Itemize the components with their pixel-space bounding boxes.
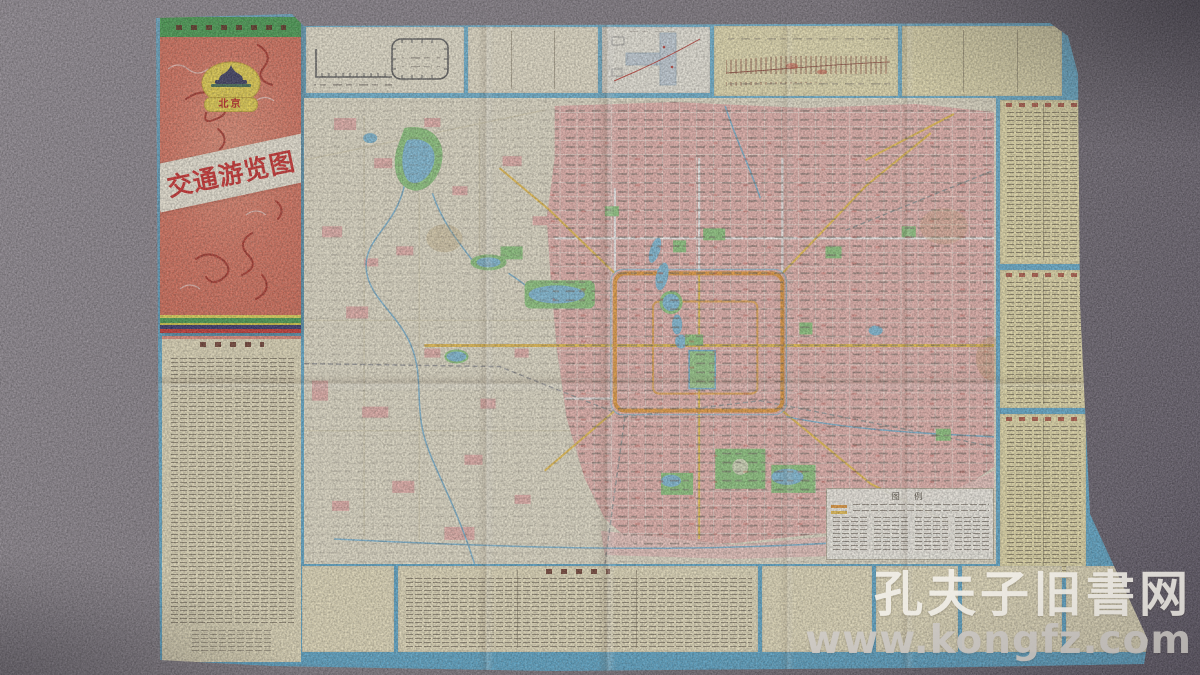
table-rule	[1043, 418, 1044, 574]
table-rule	[636, 570, 637, 648]
legend-box: 图 例	[826, 488, 994, 560]
subway-diagram-panel	[306, 27, 464, 93]
fare-table-panel	[468, 27, 598, 93]
table-rule	[1043, 104, 1044, 260]
right-list-panel-1	[1000, 100, 1086, 264]
subway-line-diagram	[306, 27, 464, 93]
table-rule	[517, 570, 518, 648]
top-strip	[304, 24, 1066, 100]
legend-column	[872, 517, 908, 553]
bottom-panel-3	[762, 566, 872, 652]
bottom-strip-title	[546, 569, 610, 574]
right-column	[1000, 100, 1086, 578]
table-rule	[554, 31, 555, 89]
route-profile-panel	[714, 26, 898, 96]
right-list-panel-3	[1000, 414, 1086, 578]
legend-row	[831, 504, 989, 508]
directory-header-text	[200, 342, 264, 347]
table-rule	[511, 31, 512, 89]
cover-top-band	[160, 17, 301, 37]
directory-top-rule	[162, 336, 301, 339]
panel-rows	[404, 578, 752, 648]
table-rule	[1043, 274, 1044, 404]
legend-column	[953, 517, 989, 553]
legend-label-text	[851, 504, 989, 508]
route-profile-diagram	[714, 26, 898, 96]
map-sheet: 北京 交通游览图	[152, 14, 1156, 672]
ring-road-swatch	[831, 505, 847, 508]
bottom-strip	[302, 566, 1150, 654]
cover-panel: 北京 交通游览图	[160, 17, 301, 333]
legend-column	[831, 517, 867, 553]
bottom-panel-6	[1066, 566, 1148, 652]
legend-column	[913, 517, 949, 553]
photo-of-beijing-tourist-map: 北京 交通游览图	[0, 0, 1200, 675]
legend-title: 图 例	[831, 491, 989, 502]
bottom-panel-2	[398, 566, 758, 652]
legend-row	[831, 510, 989, 514]
directory-column-gap	[232, 358, 235, 624]
inset-map-panel	[602, 27, 710, 93]
route-list-panel	[902, 26, 1062, 96]
table-rule	[1017, 30, 1018, 92]
cover-band-small-text	[176, 25, 286, 30]
right-list-panel-2	[1000, 270, 1086, 408]
table-rule	[963, 30, 964, 92]
cover-rainbow-stripes	[160, 315, 301, 333]
bottom-panel-4	[876, 566, 958, 652]
bottom-panel-1	[302, 566, 394, 652]
bottom-panel-5	[962, 566, 1062, 652]
city-map: 图 例	[304, 98, 996, 564]
directory-panel	[162, 336, 301, 662]
publisher-imprint	[190, 630, 273, 654]
legend-label-text	[851, 510, 989, 514]
main-road-swatch	[831, 511, 847, 514]
legend-symbol-columns	[831, 517, 989, 553]
inset-map	[602, 27, 710, 93]
cover-body: 北京 交通游览图	[160, 37, 301, 315]
cover-city-ribbon: 北京	[204, 97, 258, 112]
cover-city-label: 北京	[219, 99, 243, 110]
